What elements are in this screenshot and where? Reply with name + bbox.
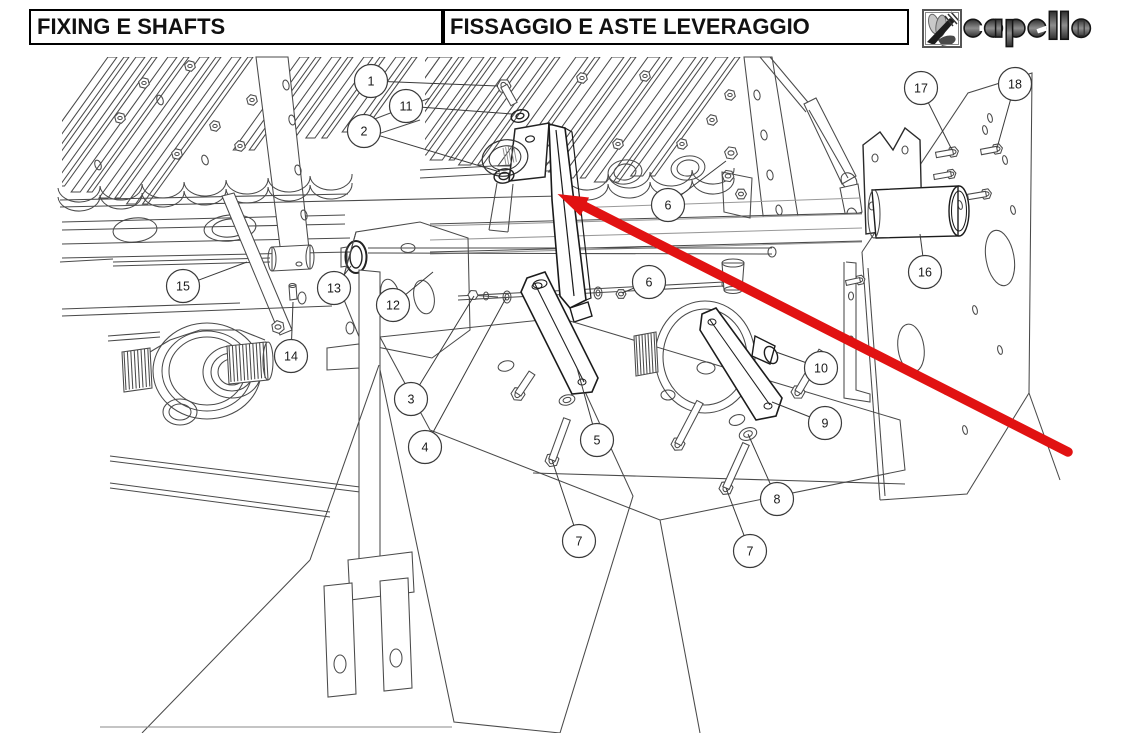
svg-text:11: 11 [400,100,413,114]
svg-text:6: 6 [665,199,672,213]
svg-text:3: 3 [408,393,415,407]
svg-text:9: 9 [822,417,829,431]
svg-text:15: 15 [176,280,190,294]
svg-text:2: 2 [361,125,368,139]
svg-text:13: 13 [327,282,341,296]
svg-text:10: 10 [814,362,828,376]
svg-text:6: 6 [646,276,653,290]
svg-text:7: 7 [576,535,583,549]
svg-text:7: 7 [747,545,754,559]
svg-text:8: 8 [774,493,781,507]
svg-text:17: 17 [914,82,928,96]
svg-text:14: 14 [284,350,298,364]
svg-text:5: 5 [594,434,601,448]
svg-text:4: 4 [422,441,429,455]
svg-text:18: 18 [1008,78,1022,92]
svg-text:16: 16 [918,266,932,280]
svg-text:12: 12 [386,299,400,313]
svg-text:1: 1 [368,75,375,89]
